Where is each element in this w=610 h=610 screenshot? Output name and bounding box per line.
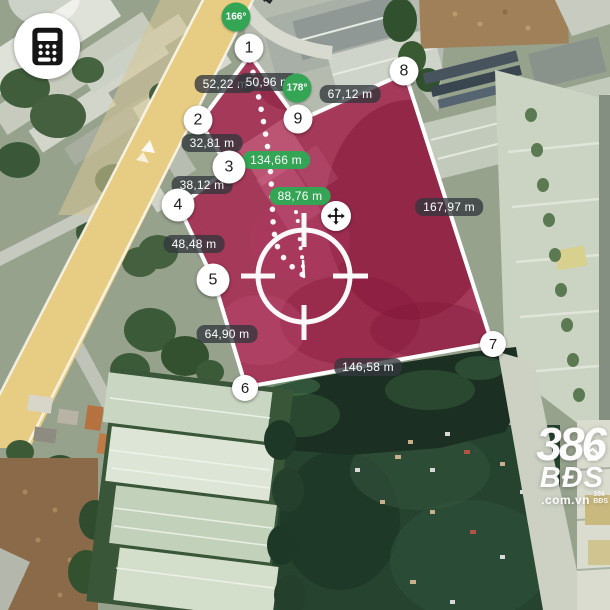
edge-distance-label: 48,48 m <box>164 235 225 253</box>
vertex-marker-8[interactable]: 8 <box>390 57 419 86</box>
calculator-button[interactable] <box>14 13 80 79</box>
house-icon <box>584 447 601 462</box>
vertex-marker-6[interactable]: 6 <box>232 375 258 401</box>
angle-badge: 178° <box>283 74 312 103</box>
edge-distance-label: 64,90 m <box>197 325 258 343</box>
satellite-map[interactable]: Đ. Q <box>0 0 610 610</box>
vertex-marker-3[interactable]: 3 <box>213 151 246 184</box>
vertex-marker-7[interactable]: 7 <box>480 331 506 357</box>
guide-distance-label: 88,76 m <box>270 187 331 205</box>
vertex-marker-4[interactable]: 4 <box>162 189 195 222</box>
angle-badge: 166° <box>222 3 251 32</box>
guide-distance-label: 134,66 m <box>242 151 310 169</box>
watermark-number: 386 <box>536 426 604 464</box>
watermark-small: 386 BĐS <box>593 491 608 505</box>
edge-distance-label: 167,97 m <box>415 198 483 216</box>
watermark-domain: .com.vn <box>536 493 590 507</box>
brand-watermark: 386 BĐS .com.vn 386 BĐS <box>536 426 604 507</box>
calculator-icon <box>31 26 64 67</box>
edge-distance-label: 146,58 m <box>334 358 402 376</box>
vertex-marker-9[interactable]: 9 <box>284 105 313 134</box>
vertex-marker-2[interactable]: 2 <box>184 106 213 135</box>
move-icon <box>326 206 346 226</box>
edge-distance-label: 32,81 m <box>182 134 243 152</box>
vertex-marker-5[interactable]: 5 <box>197 264 230 297</box>
edge-distance-label: 67,12 m <box>320 85 381 103</box>
vertex-marker-1[interactable]: 1 <box>235 34 264 63</box>
move-handle-button[interactable] <box>321 201 351 231</box>
